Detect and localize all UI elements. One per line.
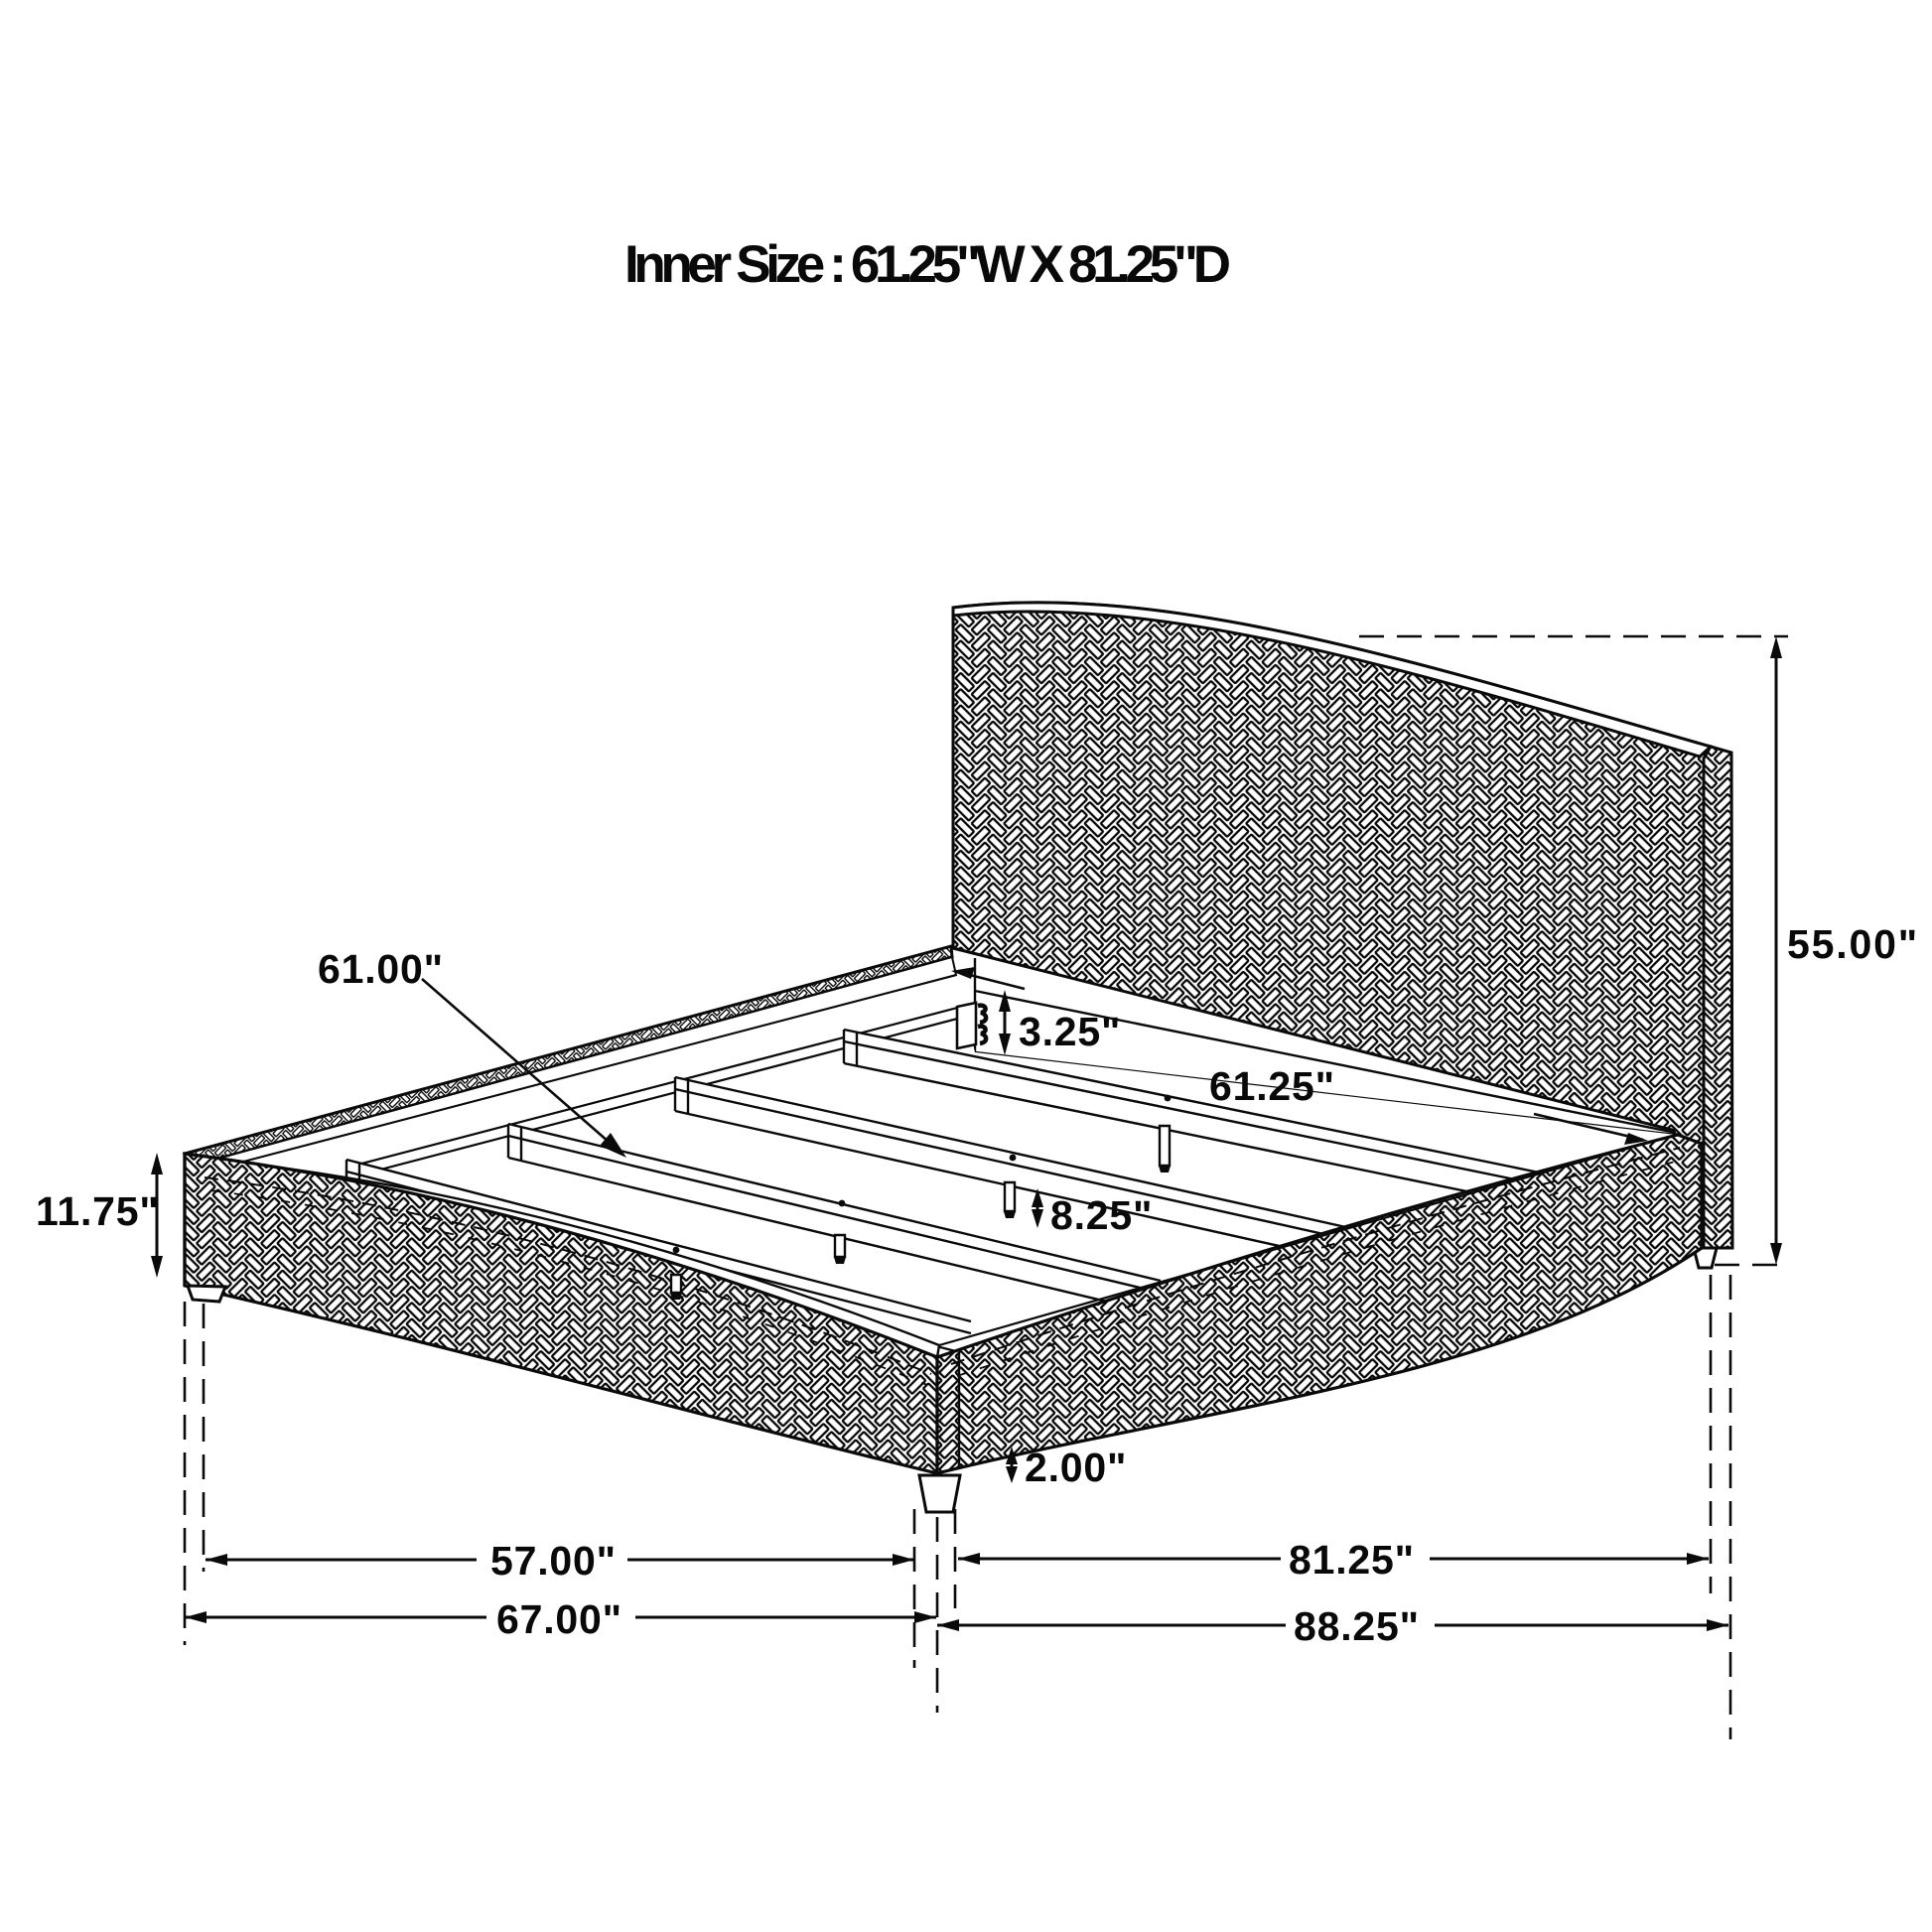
svg-text:88.25": 88.25" (1294, 1603, 1420, 1649)
svg-text:61.25": 61.25" (1209, 1063, 1335, 1109)
svg-text:55.00": 55.00" (1787, 921, 1918, 967)
svg-text:8.25": 8.25" (1050, 1192, 1153, 1238)
svg-text:Inner Size : 61.25"W X 81.25"D: Inner Size : 61.25"W X 81.25"D (624, 235, 1231, 294)
svg-text:3.25": 3.25" (1019, 1009, 1121, 1054)
svg-text:67.00": 67.00" (496, 1596, 622, 1642)
svg-text:2.00": 2.00" (1025, 1445, 1127, 1490)
svg-text:81.25": 81.25" (1289, 1537, 1415, 1583)
svg-text:11.75": 11.75" (36, 1188, 160, 1234)
svg-text:57.00": 57.00" (490, 1538, 617, 1584)
svg-text:61.00": 61.00" (318, 946, 444, 992)
